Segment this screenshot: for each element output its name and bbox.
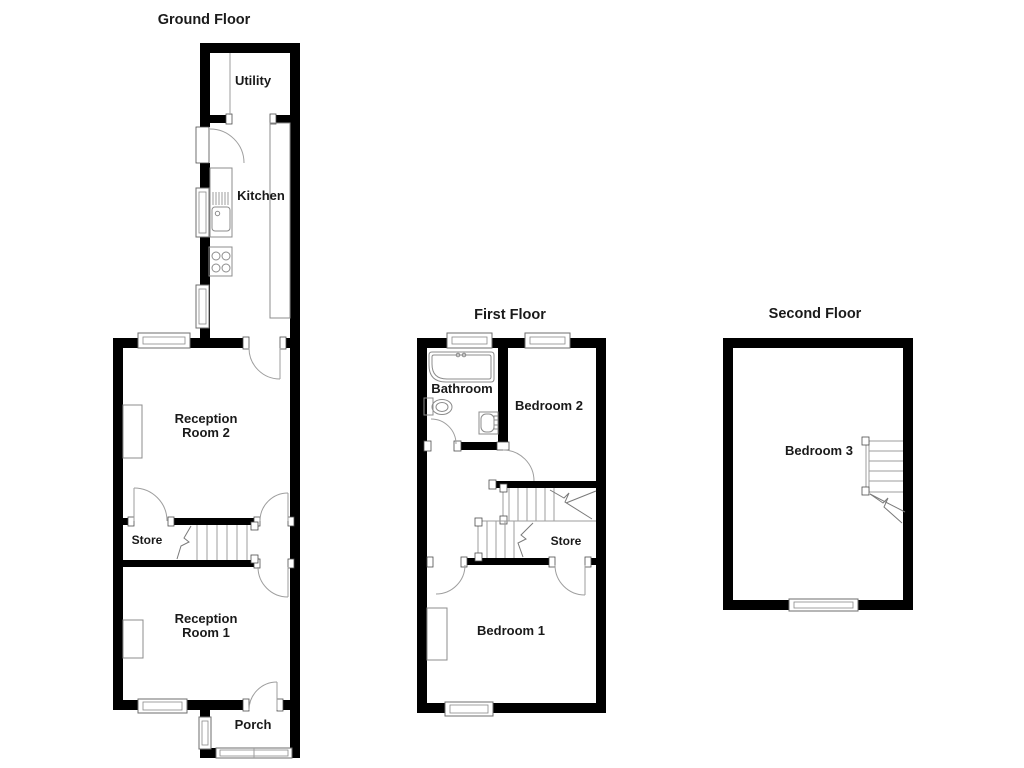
room-label-bedroom-2: Bedroom 2 — [515, 399, 583, 413]
room-label-bedroom-1: Bedroom 1 — [477, 624, 545, 638]
reception1-door-arc — [258, 567, 288, 597]
window — [447, 333, 492, 348]
window — [196, 285, 209, 328]
second-floor-walls — [723, 338, 913, 610]
kitchen-sink-unit — [210, 168, 232, 237]
reception2-door-arc — [249, 348, 280, 379]
bedroom1-left-door-arc — [436, 565, 465, 594]
room-label-bathroom: Bathroom — [431, 382, 492, 396]
second-floor-windows — [789, 599, 858, 611]
kitchen-side-door-frame — [196, 127, 209, 163]
bedroom2-door-arc — [503, 450, 534, 481]
floorplan-canvas: Ground Floor Utility Kitchen Reception R… — [0, 0, 1024, 768]
kitchen-counter — [270, 123, 290, 318]
second-floor-plan — [723, 338, 913, 611]
kitchen-door-arc — [210, 129, 244, 163]
hob — [209, 247, 232, 276]
toilet — [424, 398, 452, 415]
window — [196, 188, 209, 237]
first-floor-openings — [424, 441, 591, 567]
second-floor-staircase — [862, 437, 905, 523]
ground-floor-staircase — [177, 522, 258, 563]
floorplan-drawing — [0, 0, 1024, 768]
room-label-utility: Utility — [235, 74, 271, 88]
hall-door-arc — [260, 493, 288, 521]
room-label-reception-2: Reception Room 2 — [175, 412, 238, 440]
floor-title-ground: Ground Floor — [158, 13, 251, 27]
window — [445, 702, 493, 716]
bathtub — [429, 352, 494, 382]
first-floor-staircase-down — [475, 518, 535, 561]
bedroom1-right-door-arc — [555, 565, 585, 595]
room-label-bedroom-3: Bedroom 3 — [785, 444, 853, 458]
chimney-breast — [427, 608, 447, 660]
room-label-reception-1: Reception Room 1 — [175, 612, 238, 640]
window — [525, 333, 570, 348]
bathroom-door-arc — [431, 419, 456, 444]
chimney-breast — [123, 405, 143, 658]
ground-floor-plan — [113, 43, 300, 758]
floor-title-second: Second Floor — [769, 307, 862, 321]
store-door-arc — [134, 488, 167, 521]
washbasin — [479, 412, 498, 434]
floor-title-first: First Floor — [474, 308, 546, 322]
window — [199, 717, 211, 749]
room-label-kitchen: Kitchen — [237, 189, 285, 203]
window — [138, 699, 187, 713]
room-label-porch: Porch — [235, 718, 272, 732]
room-label-store-ground: Store — [132, 533, 163, 547]
ground-floor-windows — [138, 188, 292, 758]
room-label-store-first: Store — [551, 534, 582, 548]
window — [216, 748, 292, 758]
first-floor-staircase-up — [500, 484, 596, 524]
window — [138, 333, 190, 348]
window — [789, 599, 858, 611]
